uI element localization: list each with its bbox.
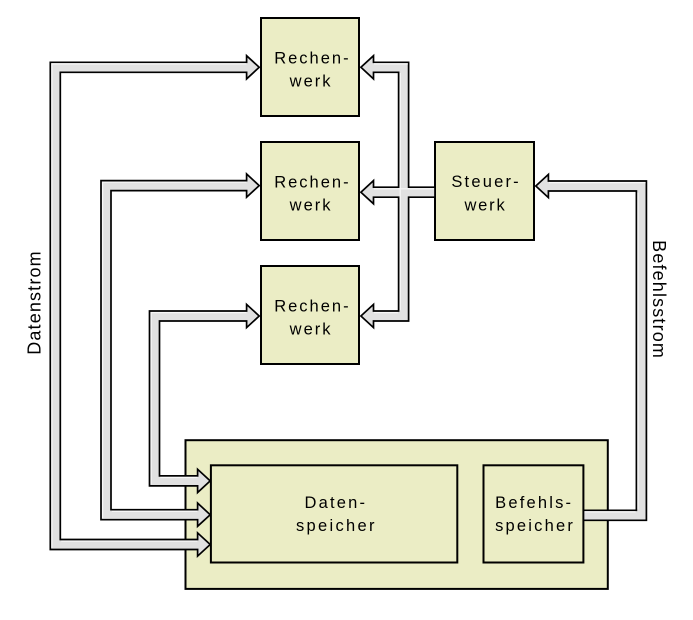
svg-text:Befehls-: Befehls- (495, 494, 573, 512)
svg-text:Rechen-: Rechen- (274, 173, 350, 191)
svg-text:Datenstrom: Datenstrom (25, 250, 45, 355)
svg-text:speicher: speicher (495, 517, 575, 535)
svg-text:Rechen-: Rechen- (274, 297, 350, 315)
svg-text:werk: werk (289, 72, 333, 90)
svg-text:werk: werk (289, 320, 333, 338)
svg-text:Steuer-: Steuer- (451, 173, 521, 191)
svg-text:Befehlsstrom: Befehlsstrom (649, 240, 669, 359)
svg-text:speicher: speicher (296, 517, 377, 535)
svg-text:werk: werk (289, 196, 333, 214)
svg-text:werk: werk (463, 196, 506, 214)
svg-text:Daten-: Daten- (305, 494, 368, 512)
svg-text:Rechen-: Rechen- (274, 49, 350, 67)
